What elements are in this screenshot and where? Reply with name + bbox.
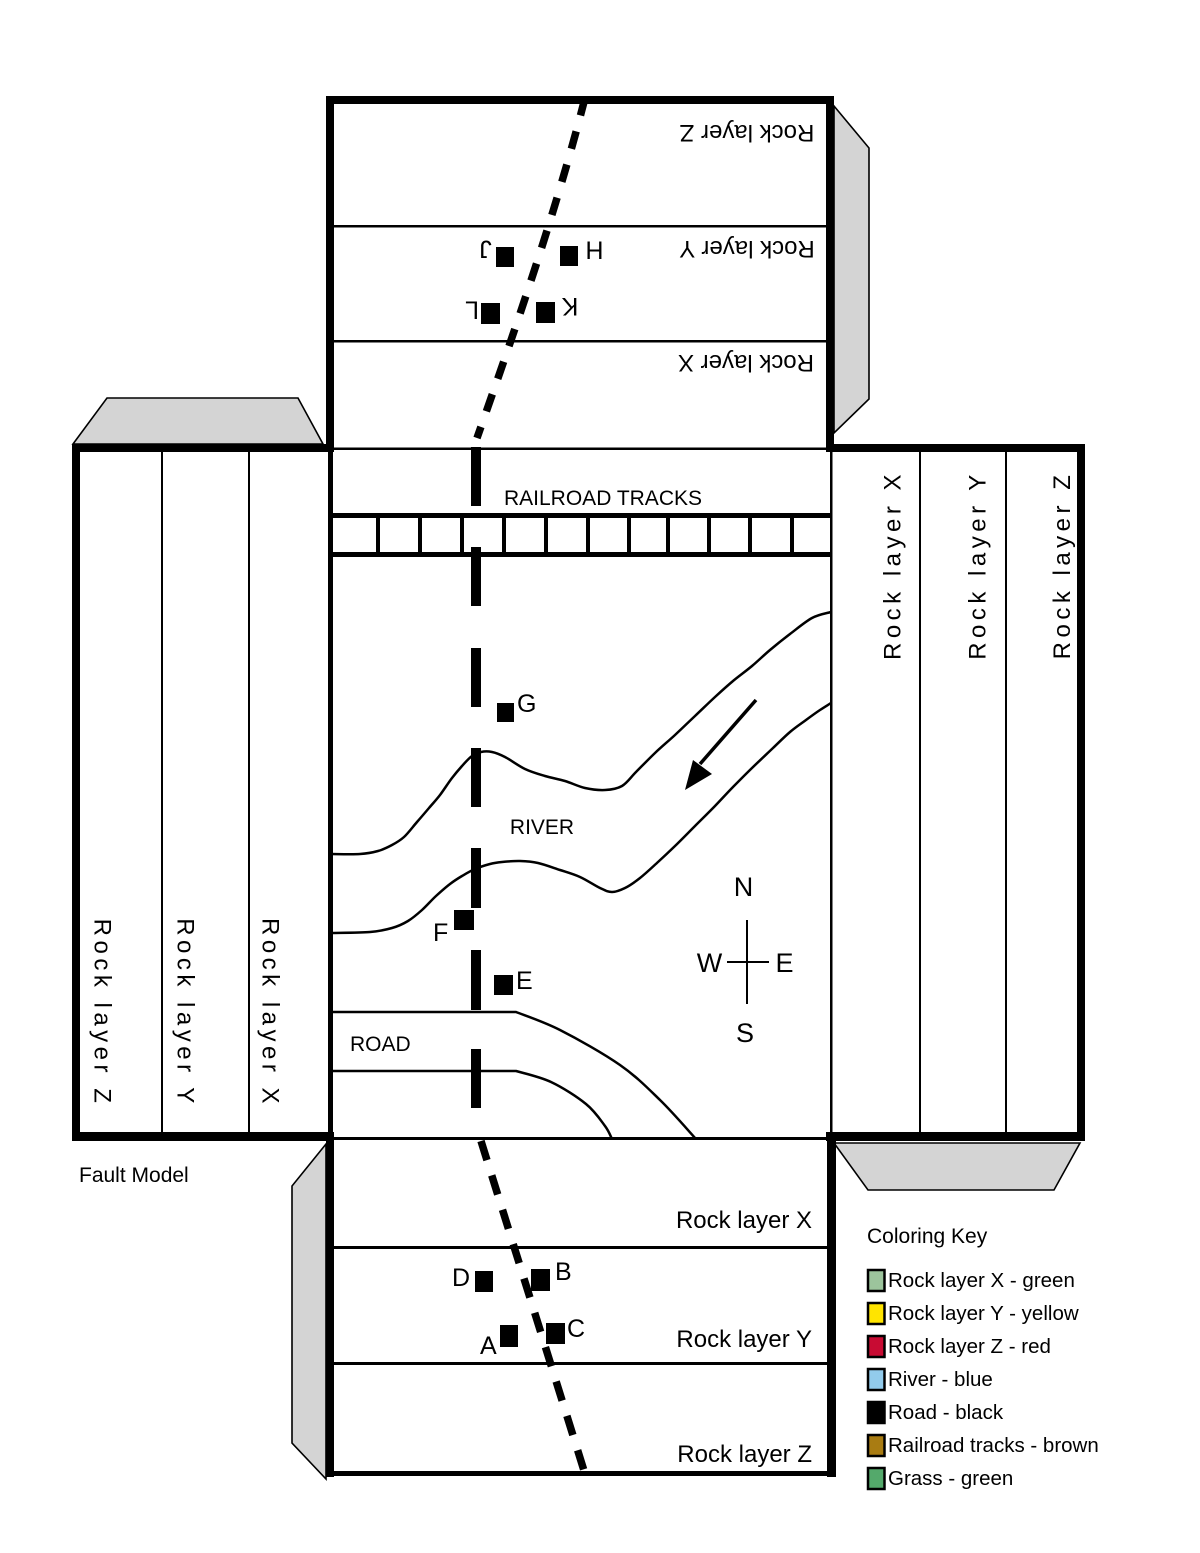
svg-text:River - blue: River - blue (888, 1368, 993, 1391)
svg-text:Rock layer Y: Rock layer Y (676, 1326, 812, 1353)
svg-text:Rock layer Y: Rock layer Y (965, 470, 992, 660)
svg-text:A: A (480, 1332, 497, 1360)
svg-text:K: K (561, 292, 578, 320)
svg-text:J: J (479, 235, 492, 263)
svg-text:Railroad tracks - brown: Railroad tracks - brown (888, 1434, 1099, 1457)
svg-text:RIVER: RIVER (510, 816, 574, 839)
svg-text:Rock layer Y: Rock layer Y (172, 918, 199, 1108)
svg-text:Rock layer Z: Rock layer Z (680, 119, 815, 146)
svg-text:Rock layer Y: Rock layer Y (679, 235, 815, 262)
svg-text:Grass - green: Grass - green (888, 1467, 1013, 1490)
svg-text:H: H (585, 236, 603, 264)
svg-text:Fault Model: Fault Model (79, 1164, 189, 1187)
svg-text:RAILROAD TRACKS: RAILROAD TRACKS (504, 487, 702, 510)
svg-text:E: E (775, 948, 793, 978)
svg-text:Rock layer Z: Rock layer Z (89, 919, 116, 1108)
svg-text:B: B (555, 1258, 572, 1286)
svg-text:F: F (433, 919, 448, 947)
svg-text:Rock layer Z - red: Rock layer Z - red (888, 1335, 1051, 1358)
svg-text:G: G (517, 690, 536, 718)
svg-text:Rock layer X: Rock layer X (676, 1207, 812, 1234)
svg-text:E: E (516, 967, 533, 995)
svg-text:Rock layer Y - yellow: Rock layer Y - yellow (888, 1302, 1079, 1325)
svg-text:Rock layer X: Rock layer X (257, 918, 284, 1108)
svg-text:Rock layer Z: Rock layer Z (677, 1441, 812, 1468)
svg-text:L: L (465, 296, 479, 324)
svg-text:W: W (697, 948, 723, 978)
svg-text:Rock layer X: Rock layer X (880, 470, 907, 660)
svg-text:S: S (736, 1018, 754, 1048)
svg-text:N: N (734, 872, 754, 902)
svg-text:Rock layer Z: Rock layer Z (1049, 471, 1076, 660)
svg-text:Rock layer X: Rock layer X (678, 349, 814, 376)
svg-text:Coloring Key: Coloring Key (867, 1225, 988, 1248)
svg-text:ROAD: ROAD (350, 1033, 411, 1056)
svg-text:C: C (567, 1315, 585, 1343)
svg-text:Road - black: Road - black (888, 1401, 1004, 1424)
svg-text:D: D (452, 1264, 470, 1292)
svg-text:Rock layer X - green: Rock layer X - green (888, 1269, 1075, 1292)
